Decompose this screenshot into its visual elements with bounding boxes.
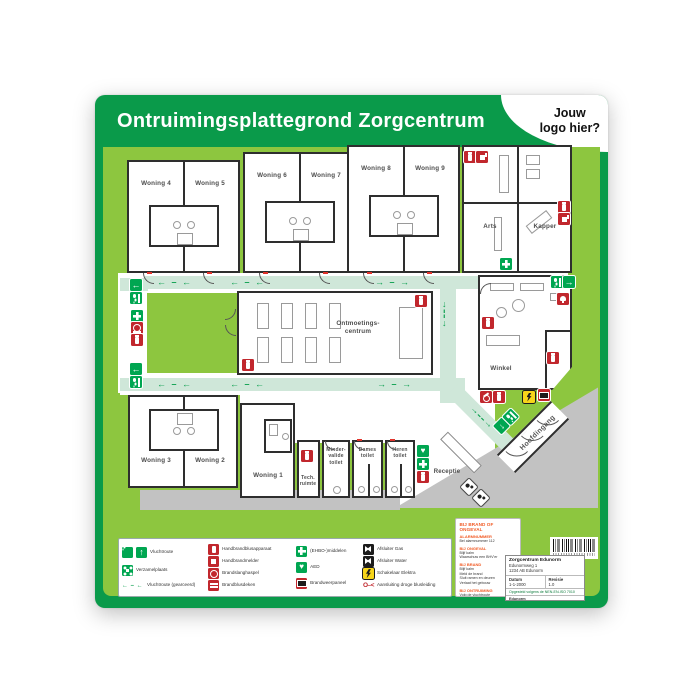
screenshot-canvas: Ontruimingsplattegrond Zorgcentrum Jouw … — [0, 0, 700, 700]
extinguisher-icon — [493, 391, 505, 403]
table — [305, 337, 317, 363]
assembly-point-icon — [122, 565, 133, 576]
legend-row: Afsluiter Gas — [363, 544, 448, 555]
room-woning-3-2 — [128, 395, 238, 488]
room-label: Woning 9 — [405, 165, 455, 173]
exit-running-man-icon — [122, 547, 133, 558]
evacuation-chair-icon — [480, 391, 492, 403]
cabinet — [526, 155, 540, 165]
shower-fixture — [177, 233, 193, 245]
exit-arrow-icon — [563, 276, 575, 288]
legend-label: AED — [310, 565, 319, 570]
legend-row: Vluchtroute — [122, 547, 205, 558]
toilet-fixture — [405, 486, 412, 493]
room-label: Woning 3 — [131, 457, 181, 465]
legend-label: Handbrandblusapparaat — [222, 547, 271, 552]
route-arrow-right-3 — [377, 379, 413, 389]
bathroom-pod — [149, 409, 219, 451]
toilet-fixture — [358, 486, 365, 493]
shelf — [520, 283, 544, 291]
wall-tick — [263, 272, 268, 274]
legend-label: Verzamelplaats — [136, 568, 167, 573]
extinguisher-icon — [558, 201, 570, 213]
wall-tick — [323, 272, 328, 274]
wall-tick — [147, 272, 152, 274]
extinguisher-icon — [131, 334, 143, 346]
table — [281, 303, 293, 329]
wall-tick — [367, 272, 372, 274]
plan-info-box: Zorgcentrum Edunorm Edunormweg 1 1234 AB… — [505, 555, 585, 601]
first-aid-icon — [296, 546, 307, 557]
table — [257, 337, 269, 363]
room-label: Woning 7 — [301, 172, 351, 180]
room-label: Woning 5 — [185, 180, 235, 188]
aed-icon — [417, 445, 429, 457]
room-label: Woning 4 — [131, 180, 181, 188]
legend-row: Handbrandblusapparaat — [208, 544, 293, 555]
bathroom-pod — [149, 205, 219, 247]
extinguisher-icon — [208, 544, 219, 555]
toilet-fixture — [393, 211, 401, 219]
legend-row: Aansluiting droge blusleiding — [363, 580, 448, 591]
wall-tick — [390, 439, 395, 441]
logo-placeholder-text: Jouw logo hier? — [540, 106, 608, 141]
corridor-bottom — [145, 378, 465, 391]
legend-row: AED — [296, 562, 360, 573]
extinguisher-icon — [464, 151, 476, 163]
legend-row: Brandweerpaneel — [296, 578, 360, 589]
room-label: Woning 1 — [243, 472, 293, 480]
fire-alarm-button-icon — [558, 213, 570, 225]
route-arrow-left-1 — [157, 277, 193, 287]
shower-fixture — [177, 413, 193, 425]
electric-switch-icon — [523, 391, 535, 403]
room-arts-kapper — [462, 145, 572, 273]
room-woning-4-5 — [127, 160, 240, 273]
extinguisher-icon — [242, 359, 254, 371]
legend-row: Brandblusdeken — [208, 580, 293, 591]
evacuation-poster: Ontruimingsplattegrond Zorgcentrum Jouw … — [95, 95, 608, 608]
first-aid-icon — [131, 310, 143, 322]
legend-label: Afsluiter Water — [377, 559, 407, 564]
room-label: Arts — [470, 223, 510, 231]
toilet-fixture — [373, 486, 380, 493]
stall-wall — [368, 464, 370, 498]
podium — [399, 307, 423, 359]
fire-alarm-button-icon — [208, 556, 219, 567]
shop-table — [512, 299, 525, 312]
room-label: Woning 6 — [247, 172, 297, 180]
room-label: Dames toilet — [352, 447, 383, 460]
route-arrow-right-1 — [375, 277, 411, 287]
stall-wall — [400, 464, 402, 498]
shower-fixture — [293, 229, 309, 241]
shower-fixture — [269, 424, 278, 436]
legend-label: Schakelaar Elektra — [377, 571, 416, 576]
toilet-fixture — [187, 221, 195, 229]
shower-fixture — [397, 223, 413, 235]
table — [257, 303, 269, 329]
route-arrow-left-4 — [230, 379, 266, 389]
legend-label: Brandslanghaspel — [222, 571, 259, 576]
table — [281, 337, 293, 363]
legend-label: Vluchtroute (gearceerd) — [147, 583, 195, 588]
legend-row: Vluchtroute (gearceerd) — [122, 583, 205, 589]
room-woning-6-7 — [243, 152, 356, 273]
cabinet — [499, 155, 509, 193]
toilet-fixture — [407, 211, 415, 219]
legend-row: Handbrandmelder — [208, 556, 293, 567]
room-label: Winkel — [483, 365, 519, 373]
extinguisher-icon — [547, 352, 559, 364]
emergency-title: BIJ BRAND OF ONGEVAL — [460, 522, 517, 532]
route-dashes-icon — [122, 583, 144, 589]
route-arrow-down — [442, 300, 447, 328]
date-value: 1-1-2000 — [509, 582, 526, 587]
fire-panel-icon — [538, 389, 550, 401]
site-address-2: 1234 AB Edunorm — [509, 568, 581, 573]
legend-col-utilities: Afsluiter Gas Afsluiter Water Schakelaar… — [363, 543, 448, 592]
extinguisher-icon — [482, 317, 494, 329]
room-label: Woning 2 — [185, 457, 235, 465]
dividing-wall — [464, 202, 570, 204]
toilet-fixture — [173, 221, 181, 229]
bathroom-pod — [264, 419, 292, 453]
room-woning-1 — [240, 403, 295, 498]
dividing-wall — [545, 330, 570, 332]
fire-blanket-icon — [208, 580, 219, 591]
toilet-fixture — [187, 427, 195, 435]
legend-row: (EHBO-)middelen — [296, 546, 360, 557]
aed-icon — [296, 562, 307, 573]
fire-alarm-icon — [557, 293, 569, 305]
exit-arrow-icon — [130, 363, 142, 375]
legend-row: Brandslanghaspel — [208, 568, 293, 579]
dividing-wall — [517, 147, 519, 271]
legend-col-green: Vluchtroute Verzamelplaats Vluchtroute (… — [122, 543, 205, 592]
toilet-fixture — [303, 217, 311, 225]
poster-title: Ontruimingsplattegrond Zorgcentrum — [107, 110, 495, 133]
shelf — [490, 283, 514, 291]
cabinet — [526, 169, 540, 179]
water-valve-icon — [363, 556, 374, 567]
hose-reel-icon — [208, 568, 219, 579]
table — [329, 337, 341, 363]
first-aid-icon — [500, 258, 512, 270]
legend-label: Brandblusdeken — [222, 583, 255, 588]
toilet-fixture — [289, 217, 297, 225]
fire-alarm-button-icon — [476, 151, 488, 163]
norm-line: Opgesteld volgens de NEN-EN-ISO 7010 — [506, 588, 584, 595]
fire-panel-icon — [296, 578, 307, 589]
publisher: Edunorm — [506, 595, 584, 602]
shop-table — [496, 307, 507, 318]
wall-tick — [357, 439, 362, 441]
wall-tick — [207, 272, 212, 274]
bathroom-pod — [369, 195, 439, 237]
room-label: Woning 8 — [351, 165, 401, 173]
info-meta-row: Datum 1-1-2000 Revisie 1.0 — [506, 575, 584, 588]
gas-valve-icon — [363, 544, 374, 555]
legend-row: Schakelaar Elektra — [363, 568, 448, 579]
toilet-fixture — [173, 427, 181, 435]
exit-running-man-icon — [130, 376, 142, 388]
toilet-fixture — [282, 433, 289, 440]
table — [305, 303, 317, 329]
legend-row: Afsluiter Water — [363, 556, 448, 567]
revision-value: 1.0 — [549, 582, 555, 587]
legend-row: Verzamelplaats — [122, 565, 205, 576]
room-label: Ontmoetings- centrum — [323, 320, 393, 336]
legend-label: Vluchtroute — [150, 550, 173, 555]
route-arrow-left-3 — [157, 379, 193, 389]
legend-col-aid: (EHBO-)middelen AED Brandweerpaneel — [296, 543, 360, 592]
toilet-fixture — [391, 486, 398, 493]
toilet-fixture — [333, 486, 341, 494]
emergency-lines: Bel alarmnummer 112 — [460, 539, 517, 544]
room-label: Minder- valide toilet — [321, 447, 351, 466]
exit-running-man-icon — [551, 276, 563, 288]
legend-label: (EHBO-)middelen — [310, 549, 346, 554]
exit-arrow-icon — [136, 547, 147, 558]
room-tech-ruimte — [297, 440, 320, 498]
legend-label: Handbrandmelder — [222, 559, 259, 564]
dry-riser-icon — [363, 580, 374, 591]
room-label: Tech. ruimte — [294, 475, 322, 488]
counter — [486, 335, 520, 346]
legend-label: Brandweerpaneel — [310, 581, 346, 586]
legend-col-red: Handbrandblusapparaat Handbrandmelder Br… — [208, 543, 293, 592]
extinguisher-icon — [301, 450, 313, 462]
wall-tick — [427, 272, 432, 274]
room-label: Heren toilet — [385, 447, 415, 460]
bathroom-pod — [265, 201, 335, 243]
legend-label: Aansluiting droge blusleiding — [377, 583, 435, 588]
electric-switch-icon — [363, 568, 374, 579]
legend-label: Afsluiter Gas — [377, 547, 403, 552]
hose-reel-icon — [131, 322, 143, 334]
extinguisher-icon — [415, 295, 427, 307]
logo-placeholder-blob: Jouw logo hier? — [501, 95, 608, 152]
exit-arrow-icon — [130, 279, 142, 291]
barcode-bars — [553, 539, 595, 552]
exit-running-man-icon — [130, 292, 142, 304]
legend: Vluchtroute Verzamelplaats Vluchtroute (… — [118, 538, 452, 597]
room-label: Receptie — [425, 469, 469, 477]
